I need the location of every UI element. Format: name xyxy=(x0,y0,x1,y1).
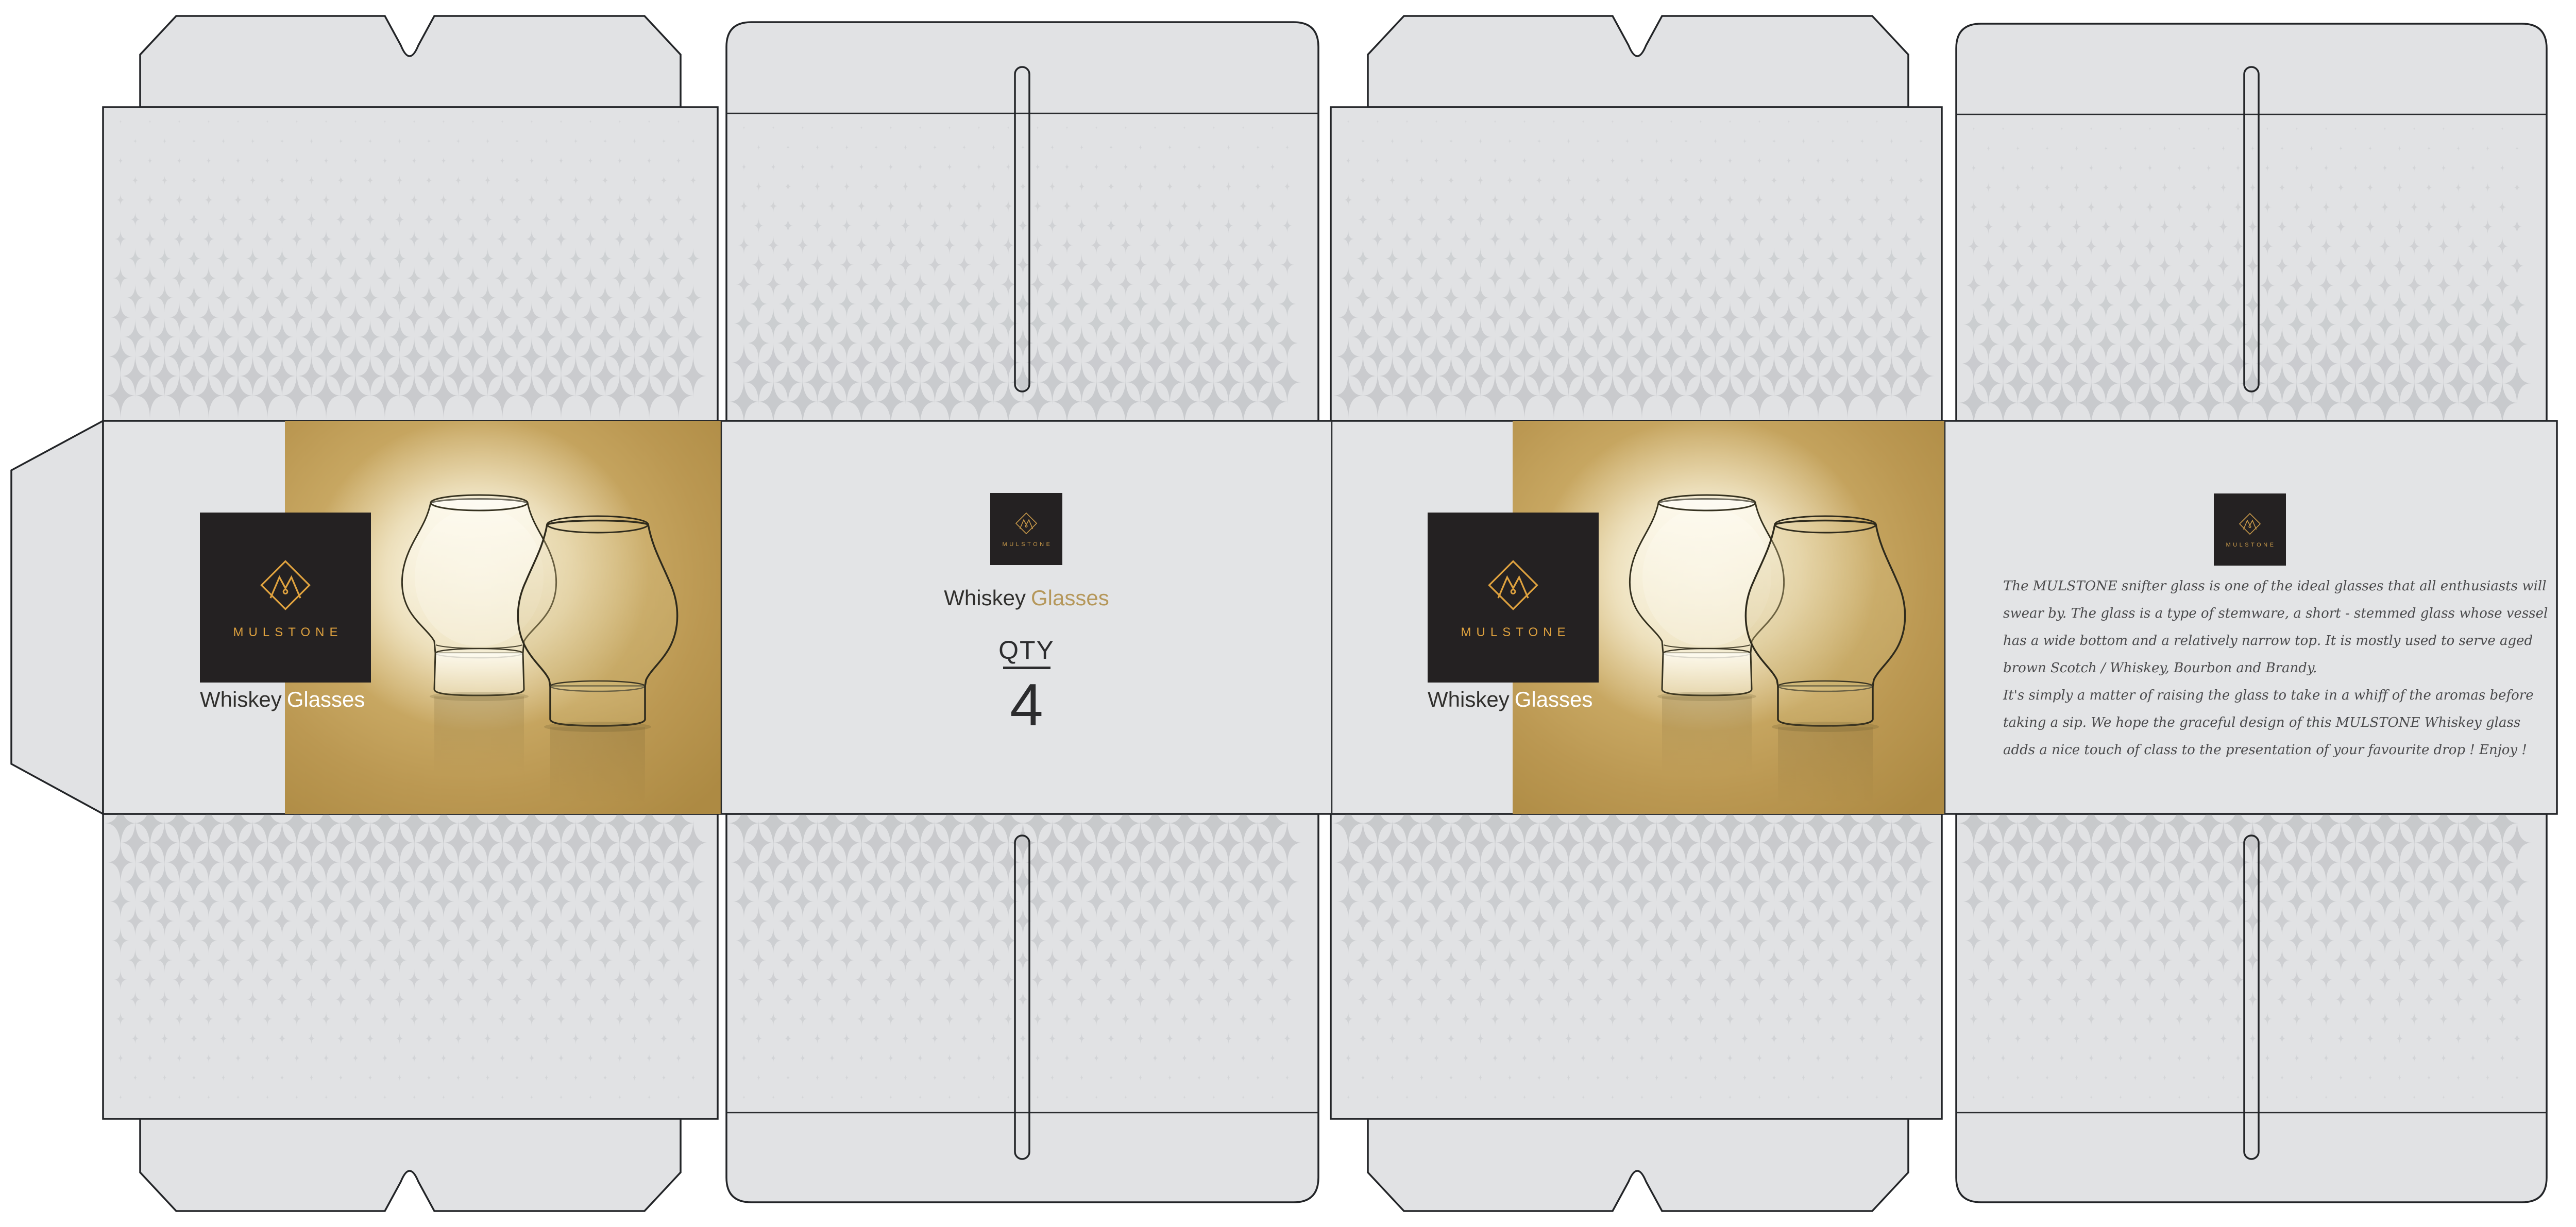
side1-top-flap xyxy=(726,22,1318,421)
description-line: swear by. The glass is a type of stemwar… xyxy=(2003,600,2548,627)
mulstone-monogram-icon xyxy=(1013,510,1039,536)
brand-wordmark: MULSTONE xyxy=(2224,542,2276,548)
mulstone-monogram-icon xyxy=(1483,555,1543,615)
title-word-whiskey: Whiskey xyxy=(944,586,1026,610)
title-word-glasses: Glasses xyxy=(287,687,365,711)
description-line: adds a nice touch of class to the presen… xyxy=(2003,737,2548,764)
title-word-whiskey: Whiskey xyxy=(1428,687,1510,711)
mulstone-monogram-icon xyxy=(2237,511,2263,537)
brand-logo-side-info: MULSTONE xyxy=(2214,493,2286,566)
front-top-tuck-flap xyxy=(140,16,681,107)
product-title-front: WhiskeyGlasses xyxy=(200,689,365,710)
front-bottom-tuck-flap xyxy=(140,1119,681,1211)
product-description: The MULSTONE snifter glass is one of the… xyxy=(2003,573,2548,764)
back-top-tuck-flap xyxy=(1368,16,1908,107)
title-word-whiskey: Whiskey xyxy=(200,687,282,711)
product-title-back: WhiskeyGlasses xyxy=(1428,689,1592,710)
qty-value: 4 xyxy=(721,675,1332,735)
title-word-glasses: Glasses xyxy=(1515,687,1593,711)
description-line: has a wide bottom and a relatively narro… xyxy=(2003,627,2548,655)
mulstone-monogram-icon xyxy=(256,555,315,615)
description-line: taking a sip. We hope the graceful desig… xyxy=(2003,709,2548,737)
brand-logo-front: MULSTONE xyxy=(200,513,371,683)
brand-wordmark: MULSTONE xyxy=(1456,625,1571,640)
glue-flap xyxy=(11,421,103,814)
description-line: The MULSTONE snifter glass is one of the… xyxy=(2003,573,2548,600)
qty-divider-rule xyxy=(1003,667,1050,669)
description-line: It's simply a matter of raising the glas… xyxy=(2003,682,2548,709)
brand-wordmark: MULSTONE xyxy=(1001,541,1053,548)
title-word-glasses: Glasses xyxy=(1031,586,1109,610)
packaging-dieline-canvas: MULSTONE WhiskeyGlasses MULSTONE Whiskey… xyxy=(0,0,2576,1227)
qty-label: QTY xyxy=(721,637,1332,663)
brand-logo-side-qty: MULSTONE xyxy=(990,493,1062,565)
back-bottom-tuck-flap xyxy=(1368,1119,1908,1211)
description-line: brown Scotch / Whiskey, Bourbon and Bran… xyxy=(2003,655,2548,682)
brand-logo-back: MULSTONE xyxy=(1428,513,1599,683)
brand-wordmark: MULSTONE xyxy=(228,625,343,640)
product-title-side-qty: WhiskeyGlasses xyxy=(721,587,1332,609)
